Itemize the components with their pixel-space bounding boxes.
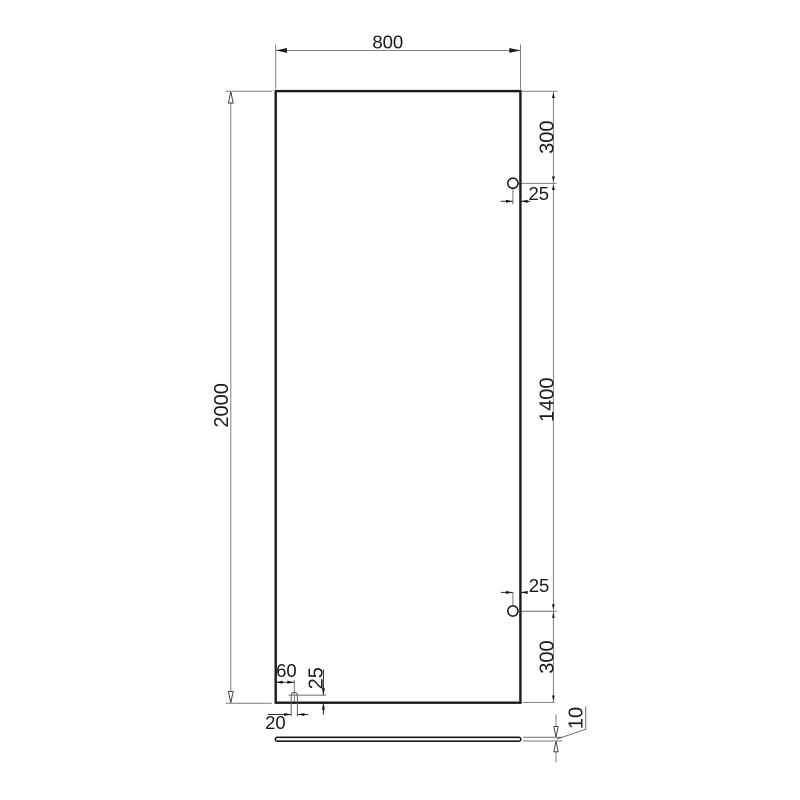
svg-text:10: 10 <box>565 707 587 729</box>
svg-text:2000: 2000 <box>211 383 233 428</box>
svg-text:20: 20 <box>265 712 286 733</box>
svg-text:300: 300 <box>537 640 559 673</box>
svg-text:1400: 1400 <box>537 377 559 422</box>
svg-text:300: 300 <box>537 121 559 154</box>
svg-text:25: 25 <box>306 667 328 689</box>
svg-text:25: 25 <box>529 183 550 204</box>
svg-text:800: 800 <box>372 32 403 53</box>
svg-text:25: 25 <box>529 575 550 596</box>
svg-text:60: 60 <box>276 660 297 681</box>
